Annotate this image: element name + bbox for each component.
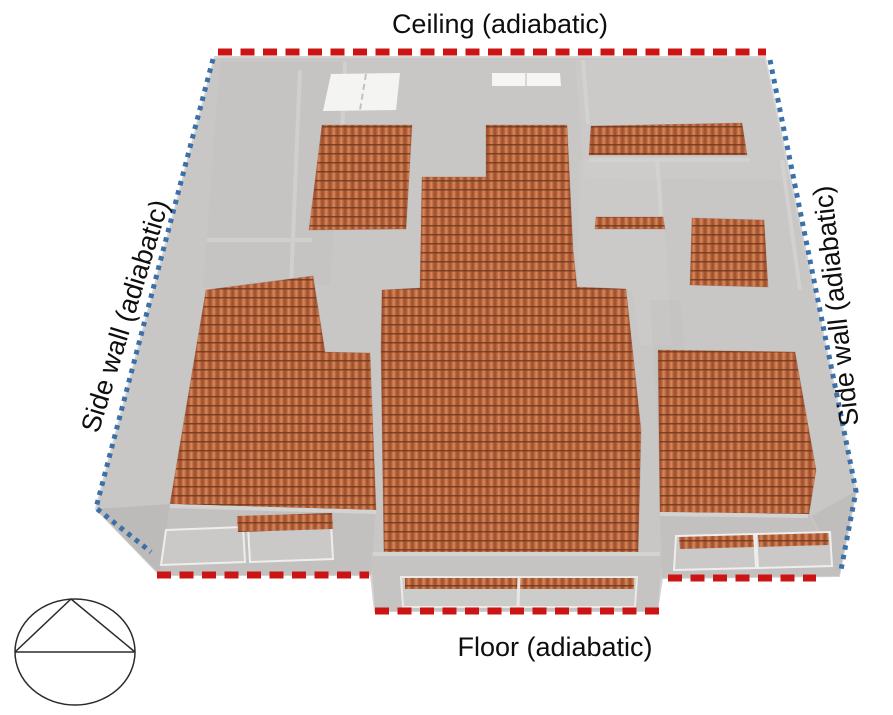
skylight-small [492, 73, 561, 86]
room-floor-right-square [690, 218, 768, 287]
building-model-figure [0, 0, 893, 715]
window-left-1 [161, 527, 245, 565]
figure-canvas: Ceiling (adiabatic) Floor (adiabatic) Si… [0, 0, 893, 715]
room-floor-top-right-strip [589, 123, 747, 155]
room-floor-top-left [309, 125, 412, 230]
north-arrow-icon [15, 599, 135, 705]
skylight-large [323, 73, 400, 111]
floor-label: Floor (adiabatic) [355, 630, 755, 664]
room-floor-right-bottom [658, 350, 816, 514]
room-floor-small-strip [595, 217, 665, 229]
ceiling-label: Ceiling (adiabatic) [290, 7, 710, 41]
